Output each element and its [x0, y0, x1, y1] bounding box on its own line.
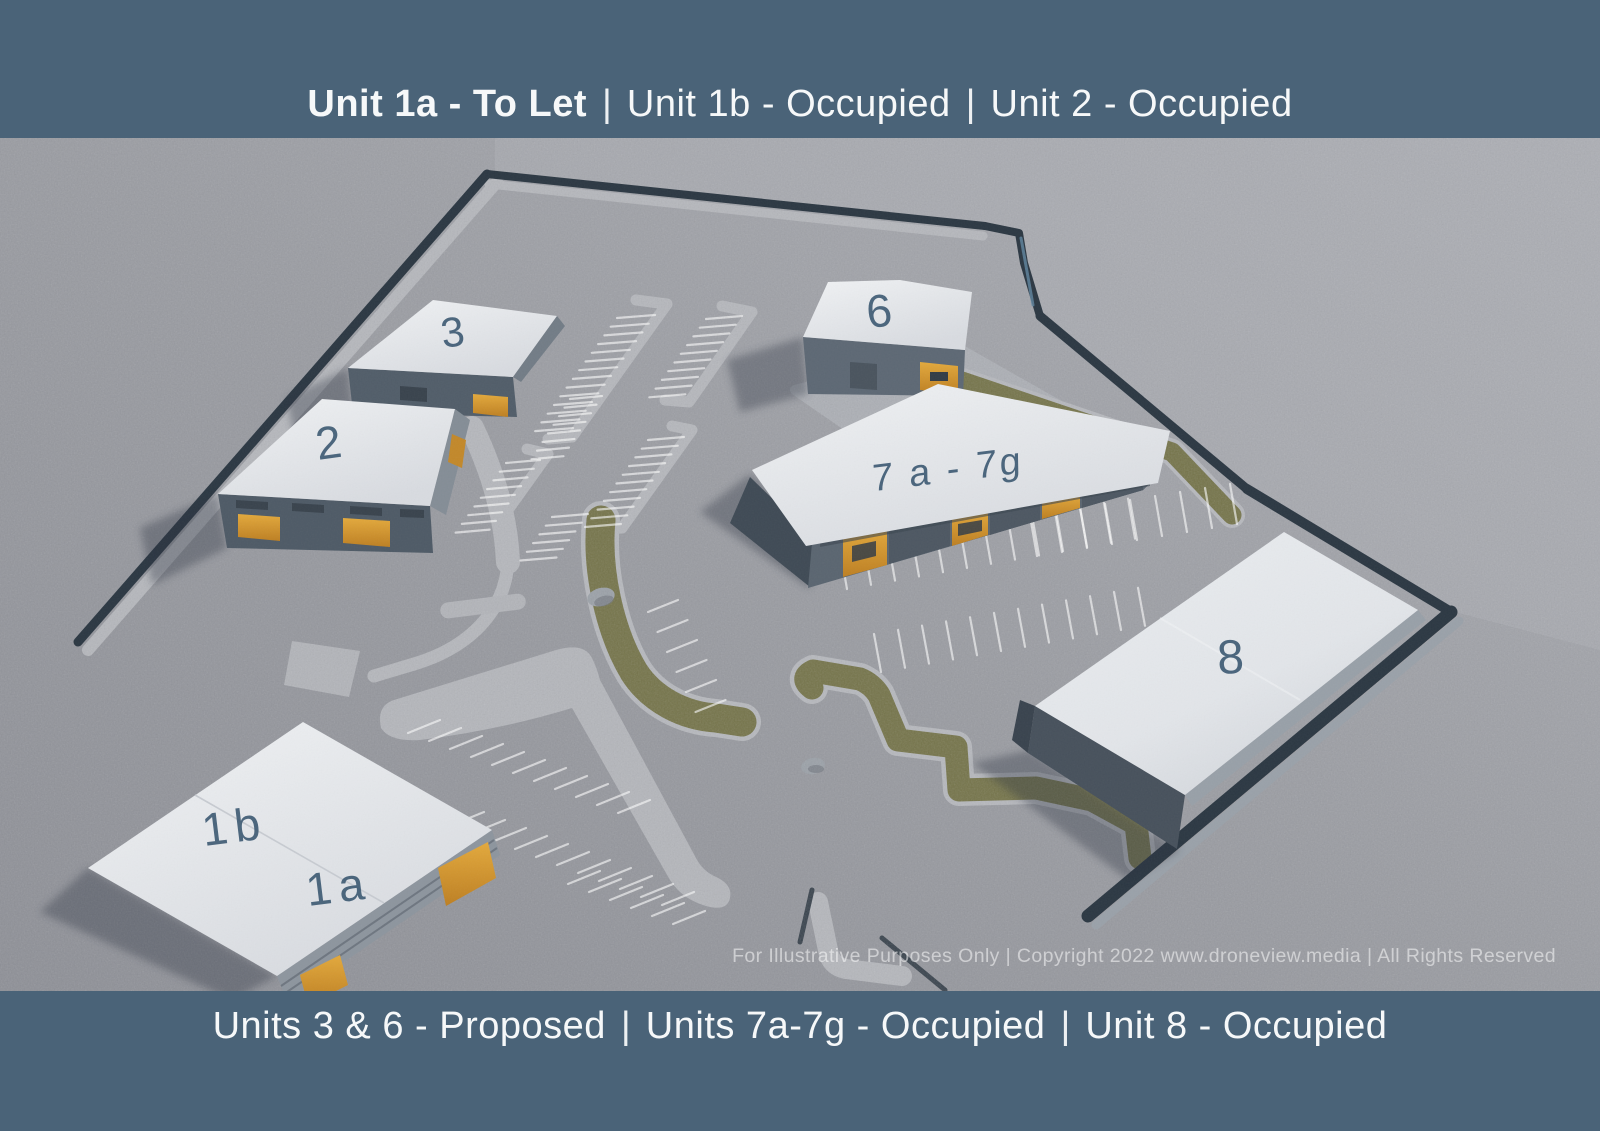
header-separator: |	[602, 83, 612, 126]
footer-separator: |	[1060, 1005, 1070, 1048]
footer-status-unit-8: Unit 8 - Occupied	[1085, 1005, 1387, 1048]
header-status-unit-1b: Unit 1b - Occupied	[627, 83, 951, 126]
site-plan-image: 3 2 6 7 a - 7g 8 1b 1a For Illustrative …	[0, 0, 1600, 1131]
header-banner: Unit 1a - To Let | Unit 1b - Occupied | …	[0, 0, 1600, 138]
footer-status-units-7a-7g: Units 7a-7g - Occupied	[646, 1005, 1046, 1048]
header-status-unit-2: Unit 2 - Occupied	[991, 83, 1293, 126]
site-render: 3 2 6 7 a - 7g 8 1b 1a For Illustrative …	[0, 0, 1600, 1131]
copyright-watermark: For Illustrative Purposes Only | Copyrig…	[732, 945, 1556, 967]
footer-separator: |	[621, 1005, 631, 1048]
overall-texture	[0, 120, 1600, 1020]
footer-banner: Units 3 & 6 - Proposed | Units 7a-7g - O…	[0, 991, 1600, 1131]
header-status-unit-1a: Unit 1a - To Let	[307, 83, 587, 126]
footer-status-units-3-6: Units 3 & 6 - Proposed	[213, 1005, 606, 1048]
header-separator: |	[966, 83, 976, 126]
